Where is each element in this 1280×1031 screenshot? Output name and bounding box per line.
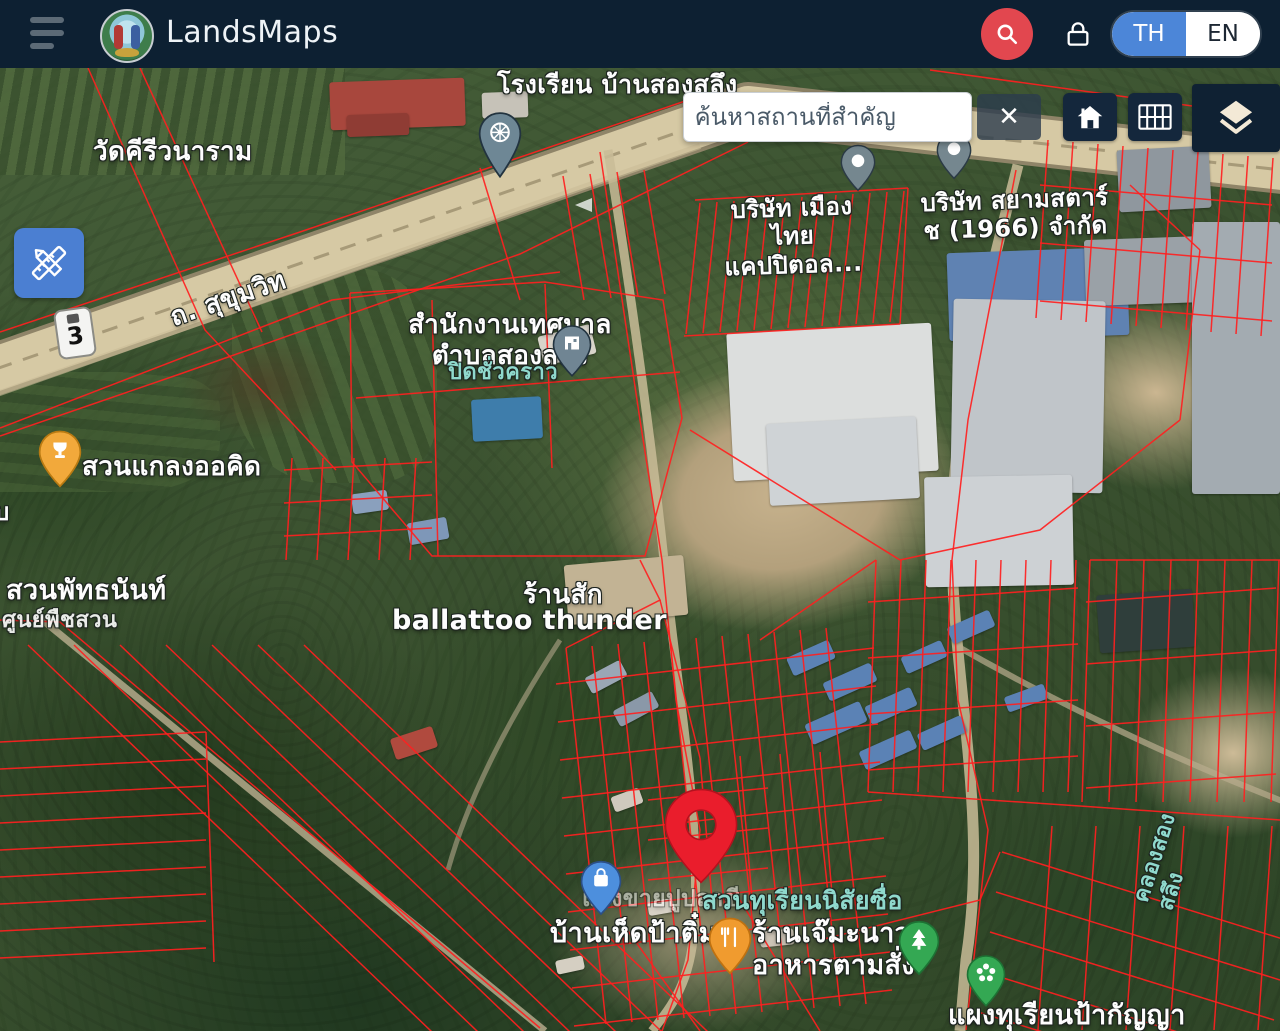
route-shield-3: 3 (55, 308, 95, 358)
temple-pin[interactable] (478, 112, 522, 178)
map-label-pattananan: สวนพัทธนันท์ (6, 575, 167, 607)
map-label-tattoo-en: ballattoo thunder (392, 605, 667, 637)
orchid-garden-pin[interactable] (38, 428, 82, 490)
login-lock-button[interactable] (1062, 18, 1094, 50)
map-label-horticulture: ศูนย์พืชสวน (2, 608, 117, 634)
map-label-edge-partial: บ (0, 498, 10, 526)
layers-icon (1213, 95, 1259, 141)
hamburger-menu-icon[interactable] (30, 17, 70, 51)
map-label-durian-honest: สวนทุเรียนนิสัยซื่อ (702, 886, 903, 916)
map-search-box[interactable] (683, 92, 972, 142)
pencil-ruler-icon (26, 240, 72, 286)
app-title: LandsMaps (166, 15, 338, 50)
road-pin-1[interactable] (840, 144, 876, 192)
map-label-muangthai-capital: บริษัท เมือง ไทย แคปปิตอล... (699, 191, 887, 282)
map-label-temple: วัดคีรีวนาราม (93, 137, 253, 168)
measure-draw-button[interactable] (14, 228, 84, 298)
map-label-closed-status: ปิดชั่วคราว (448, 360, 558, 386)
flower-garden-pin[interactable] (966, 955, 1006, 1007)
shop-pin[interactable] (580, 860, 622, 916)
map-label-mushroom-house: บ้านเห็ดป้าติ๋ม (550, 918, 717, 950)
municipality-pin[interactable] (552, 322, 592, 380)
magnifier-icon (993, 20, 1021, 48)
department-of-lands-emblem (100, 9, 154, 63)
lang-th-button[interactable]: TH (1112, 12, 1186, 56)
search-button[interactable] (981, 8, 1033, 60)
search-input[interactable] (693, 102, 963, 132)
home-extent-button[interactable] (1063, 93, 1117, 141)
map-label-je-manao: ร้านเจ๊มะนาว (752, 918, 910, 950)
map-label-siam-starch: บริษัท สยามสตาร์ ช (1966) จำกัด (895, 182, 1135, 247)
lang-en-button[interactable]: EN (1186, 12, 1260, 56)
search-clear-button[interactable]: ✕ (977, 94, 1041, 140)
grid-parcel-button[interactable] (1128, 93, 1182, 141)
grid-table-icon (1138, 104, 1172, 130)
map-label-made-to-order: อาหารตามสั่ง (752, 950, 915, 982)
basemap-layers-button[interactable] (1192, 84, 1280, 152)
tree-park-pin[interactable] (898, 920, 940, 976)
restaurant-pin[interactable] (708, 915, 752, 977)
map-label-klaeng-orchid: สวนแกลงออคิด (82, 452, 261, 483)
top-navbar: LandsMaps TH EN (0, 0, 1280, 68)
home-icon (1075, 103, 1105, 131)
shield-number: 3 (65, 322, 85, 350)
selected-parcel-marker[interactable] (660, 788, 742, 884)
padlock-icon (1062, 18, 1094, 50)
close-icon: ✕ (998, 102, 1020, 132)
map-canvas[interactable]: 3 โรงเรียน บ้านสองสลึง วัดคีรีวนาราม ถ. … (0, 0, 1280, 1031)
language-toggle[interactable]: TH EN (1112, 12, 1260, 56)
